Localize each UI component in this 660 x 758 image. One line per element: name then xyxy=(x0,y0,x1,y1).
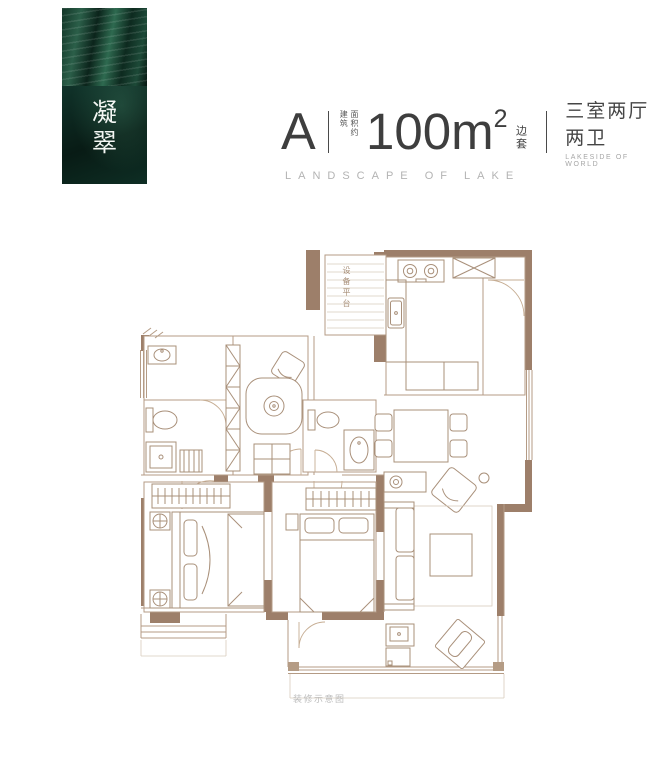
banner-title-char-2: 翠 xyxy=(62,131,147,156)
living-room xyxy=(384,466,492,610)
area-note: 建筑 面积约 xyxy=(337,110,359,154)
equipment-platform-label: 设备平台 xyxy=(341,266,352,310)
pillow xyxy=(305,518,334,533)
brand-banner: 凝 翠 xyxy=(62,8,147,184)
tagline: LANDSCAPE OF LAKE xyxy=(285,170,520,182)
dining-area xyxy=(375,410,467,462)
balcony-cabinet xyxy=(386,648,410,666)
area-note-col-right: 面积约 xyxy=(349,110,358,137)
banner-title: 凝 翠 xyxy=(62,96,147,161)
pillow xyxy=(184,520,197,556)
poster-root: 凝 翠 A 建筑 面积约 100m 2 边套 三室两厅两卫 LAKESIDE O… xyxy=(0,0,660,758)
basin-2 xyxy=(344,430,374,470)
divider-line xyxy=(328,111,329,153)
rooms-subtext: LAKESIDE OF WORLD xyxy=(565,154,660,168)
floor-plan-svg xyxy=(138,250,538,715)
wall-fixture xyxy=(479,473,489,483)
divider-line-2 xyxy=(546,111,547,153)
area-value: 100m xyxy=(366,100,494,164)
plan-caption: 装修示意图 xyxy=(293,692,346,705)
banner-title-char-1: 凝 xyxy=(62,101,147,126)
area-tag: 边套 xyxy=(513,125,529,151)
dining-chair xyxy=(450,414,467,431)
armchair xyxy=(430,466,478,514)
dining-table xyxy=(394,410,448,462)
dining-chair xyxy=(450,440,467,457)
dining-chair xyxy=(375,414,392,431)
floor-plan xyxy=(138,250,538,715)
banner-water-image xyxy=(62,8,147,86)
nightstand xyxy=(286,514,298,530)
round-table-mat xyxy=(246,378,302,434)
plan-letter: A xyxy=(281,99,317,165)
rooms-text: 三室两厅两卫 xyxy=(565,96,660,150)
title-block: A 建筑 面积约 100m 2 边套 三室两厅两卫 LAKESIDE OF WO… xyxy=(281,96,660,168)
coffee-table xyxy=(430,534,472,576)
pillow xyxy=(184,564,197,600)
balcony xyxy=(386,619,485,670)
rooms-block: 三室两厅两卫 LAKESIDE OF WORLD xyxy=(565,96,660,168)
dining-chair xyxy=(375,440,392,457)
area-figure: 100m 2 xyxy=(366,100,507,164)
lounge-chair xyxy=(435,619,486,670)
area-note-col-left: 建筑 xyxy=(338,110,347,128)
area-exponent: 2 xyxy=(494,104,508,134)
pillow xyxy=(339,518,368,533)
